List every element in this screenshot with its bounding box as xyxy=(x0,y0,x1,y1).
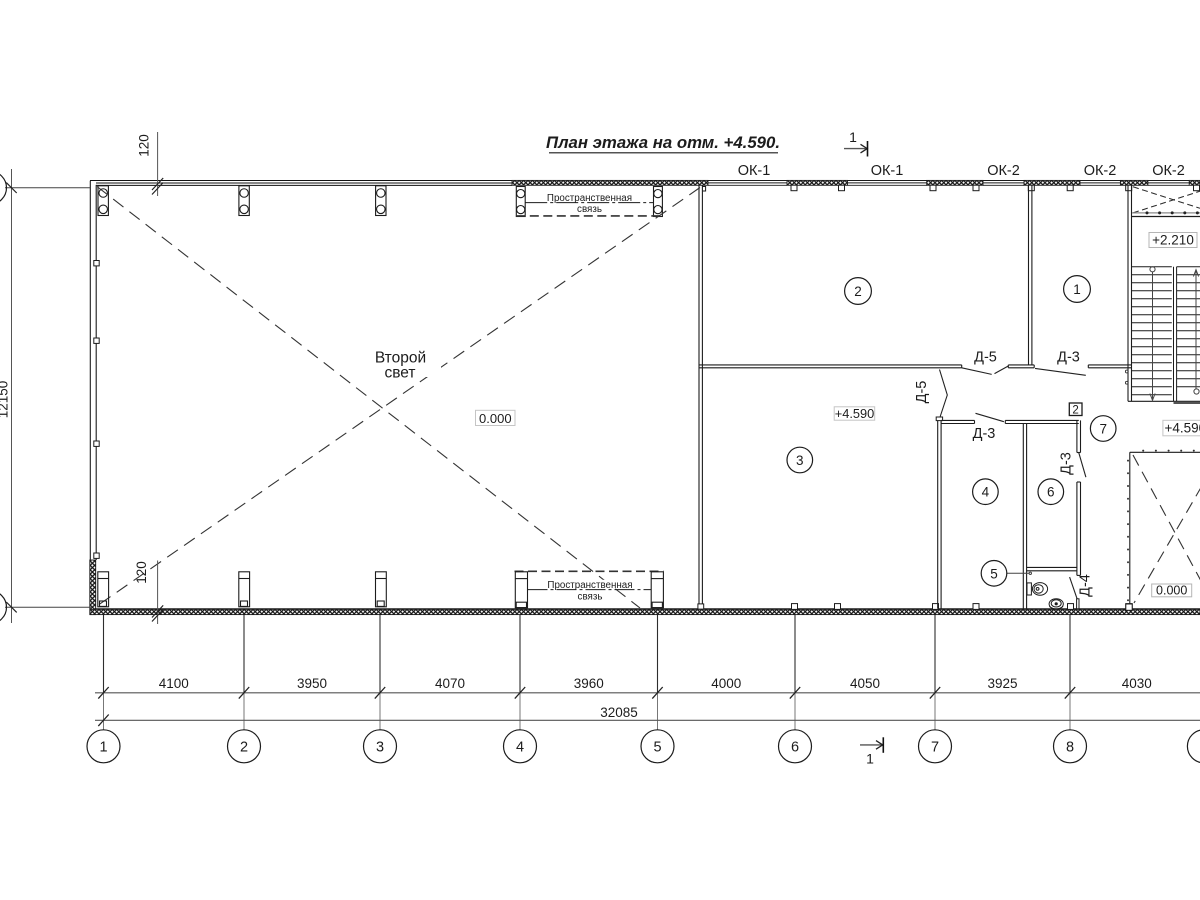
svg-text:4050: 4050 xyxy=(850,676,880,691)
svg-text:ОК-2: ОК-2 xyxy=(1084,163,1117,179)
svg-text:свет: свет xyxy=(384,365,415,382)
svg-text:Д-5: Д-5 xyxy=(914,381,930,404)
svg-text:1: 1 xyxy=(866,750,874,766)
svg-text:0.000: 0.000 xyxy=(1156,584,1187,598)
svg-text:Д-4: Д-4 xyxy=(1078,574,1094,597)
svg-text:ОК-2: ОК-2 xyxy=(987,163,1020,179)
svg-text:4100: 4100 xyxy=(159,676,189,691)
svg-text:3925: 3925 xyxy=(987,676,1017,691)
svg-text:120: 120 xyxy=(137,134,152,157)
svg-text:6: 6 xyxy=(791,740,799,756)
svg-text:2: 2 xyxy=(240,740,248,756)
svg-text:3: 3 xyxy=(796,453,804,468)
svg-text:7: 7 xyxy=(931,740,939,756)
svg-text:связь: связь xyxy=(578,592,603,603)
svg-text:4070: 4070 xyxy=(435,676,465,691)
svg-text:Д-3: Д-3 xyxy=(1057,350,1080,366)
svg-text:+4.590: +4.590 xyxy=(1165,421,1200,436)
svg-text:связь: связь xyxy=(577,204,602,215)
svg-text:1: 1 xyxy=(99,740,107,756)
svg-text:3: 3 xyxy=(376,740,384,756)
svg-text:Д-5: Д-5 xyxy=(974,350,997,366)
svg-text:1: 1 xyxy=(849,129,857,145)
svg-text:ОК-2: ОК-2 xyxy=(1152,163,1185,179)
svg-text:12150: 12150 xyxy=(0,381,11,419)
svg-text:4: 4 xyxy=(516,740,524,756)
svg-text:2: 2 xyxy=(854,284,862,299)
svg-text:120: 120 xyxy=(134,561,149,584)
svg-text:ОК-1: ОК-1 xyxy=(738,163,771,179)
svg-text:Пространственная: Пространственная xyxy=(547,193,632,204)
svg-text:8: 8 xyxy=(1066,740,1074,756)
svg-text:2: 2 xyxy=(1072,404,1078,416)
svg-text:ОК-1: ОК-1 xyxy=(871,163,904,179)
svg-text:5: 5 xyxy=(990,566,998,581)
svg-text:4: 4 xyxy=(982,485,990,500)
svg-text:7: 7 xyxy=(1099,422,1107,437)
svg-text:0.000: 0.000 xyxy=(479,411,512,426)
svg-text:5: 5 xyxy=(653,740,661,756)
svg-text:6: 6 xyxy=(1047,485,1055,500)
svg-text:Д-3: Д-3 xyxy=(973,426,996,442)
svg-text:4030: 4030 xyxy=(1122,676,1152,691)
svg-text:+4.590: +4.590 xyxy=(835,406,875,421)
svg-text:4000: 4000 xyxy=(711,676,741,691)
svg-text:Д-3: Д-3 xyxy=(1058,452,1074,475)
svg-text:План этажа на отм. +4.590.: План этажа на отм. +4.590. xyxy=(546,133,780,152)
svg-text:3950: 3950 xyxy=(297,676,327,691)
svg-text:32085: 32085 xyxy=(600,705,638,720)
svg-text:1: 1 xyxy=(1073,282,1081,297)
svg-text:+2.210: +2.210 xyxy=(1152,233,1194,248)
svg-text:3960: 3960 xyxy=(574,676,604,691)
svg-text:Пространственная: Пространственная xyxy=(547,580,632,591)
